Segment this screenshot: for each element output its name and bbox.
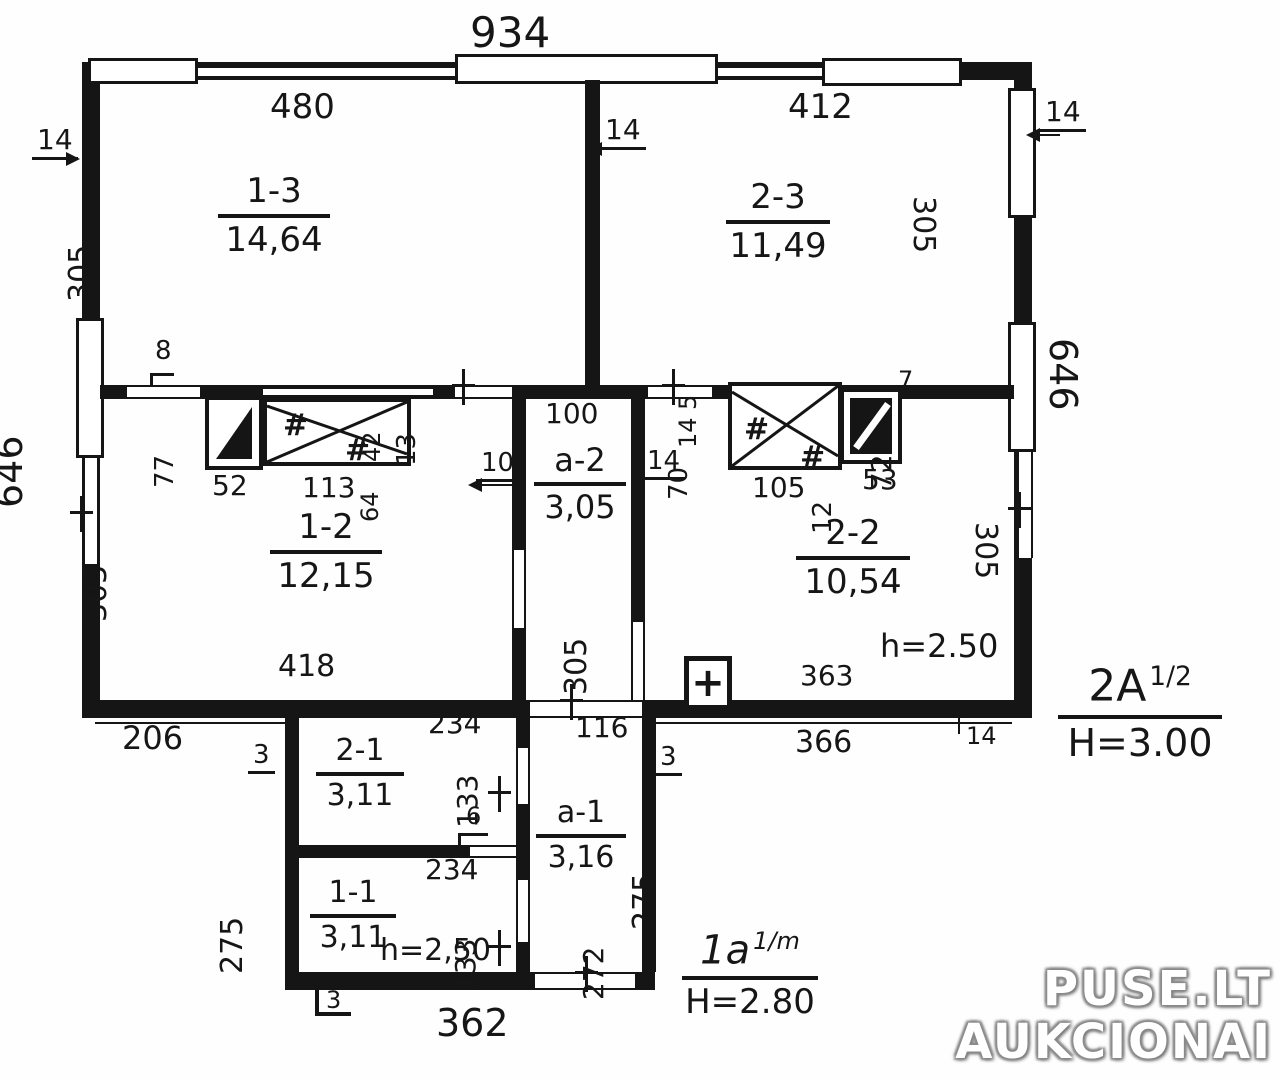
stove-icon <box>840 388 902 464</box>
room-label-2-3: 2-3 11,49 <box>726 178 830 266</box>
floor-plan: # # # # + 1-3 14,64 <box>0 0 1280 1080</box>
arrow-line <box>1038 134 1060 136</box>
dim-77: 77 <box>152 455 178 488</box>
dim-363: 363 <box>800 662 853 690</box>
dim-366: 366 <box>795 728 852 758</box>
dim-272: 272 <box>580 947 608 1000</box>
ceiling-upper: h=2.50 <box>880 630 998 662</box>
room-label-2-1: 2-1 3,11 <box>316 734 404 813</box>
dim-133-bottom: 133 <box>452 939 480 992</box>
note-code-frac: 1/m <box>753 927 800 955</box>
room-area: 11,49 <box>729 227 826 266</box>
dim-646-right: 646 <box>1044 338 1082 411</box>
room-id: a-1 <box>557 796 605 831</box>
dim-8: 8 <box>155 338 172 364</box>
dim-tick <box>80 496 83 532</box>
door-a2-right <box>631 622 645 700</box>
bracket-6-v <box>458 833 461 845</box>
room-area: 12,15 <box>277 557 374 596</box>
room-id: 2-3 <box>750 178 806 217</box>
dim-12: 12 <box>810 501 836 534</box>
dim-14-seg: 14 <box>676 417 700 448</box>
dim-13: 13 <box>394 433 420 466</box>
dim-52: 52 <box>212 472 248 500</box>
dim-418: 418 <box>278 652 335 682</box>
room-area: 14,64 <box>225 221 322 260</box>
arrow-line <box>958 716 960 734</box>
stove-fill <box>216 407 252 459</box>
building-type-note: 2A1/2 H=3.00 <box>1058 662 1222 765</box>
fraction-bar <box>270 550 382 554</box>
note-code-frac: 1/2 <box>1149 661 1191 692</box>
dim-206: 206 <box>122 722 183 754</box>
dim-72: 72 <box>868 454 896 490</box>
window-top-1 <box>88 58 198 84</box>
dim-14-bottom: 14 <box>966 724 997 748</box>
dim-top-overall: 934 <box>470 12 550 54</box>
dim-305-top-left: 305 <box>66 245 96 302</box>
dim-234-mid: 234 <box>425 856 478 884</box>
hash-mark: # <box>800 440 825 475</box>
room-id: 1-3 <box>246 172 302 211</box>
dim-tick <box>462 369 465 405</box>
bracket-8-h <box>150 373 174 376</box>
heater-icon: + <box>684 656 732 710</box>
dim-305-top-right: 305 <box>908 196 938 253</box>
room-id: 1-1 <box>329 876 378 911</box>
dim-105: 105 <box>752 474 805 502</box>
dim-3-right: 3 <box>655 744 682 776</box>
door-midwall-left <box>127 385 200 399</box>
dim-116: 116 <box>575 714 628 742</box>
door-a1-21 <box>516 748 530 804</box>
dim-275-left: 275 <box>218 917 248 974</box>
window-right-1 <box>1008 88 1036 218</box>
dim-14-mid: 14 <box>600 116 646 150</box>
stove-fill <box>844 392 898 460</box>
dim-tick <box>498 930 501 966</box>
fraction-bar <box>218 214 330 218</box>
dim-14-right: 14 <box>1040 98 1086 132</box>
fraction-bar <box>796 556 910 560</box>
watermark-line2: AUKCIONAI <box>955 1016 1272 1070</box>
hash-mark: # <box>744 412 769 447</box>
dim-70: 70 <box>666 467 692 500</box>
niche-left <box>263 387 433 397</box>
dim-14-left: 14 <box>32 126 78 160</box>
window-strip-top-right <box>718 66 822 78</box>
dim-305-bottom-left: 305 <box>82 565 112 622</box>
note-code-text: 1a <box>700 927 750 973</box>
dim-480: 480 <box>270 90 335 124</box>
window-top-2 <box>822 58 962 86</box>
dim-tick <box>498 776 501 812</box>
dim-64: 64 <box>358 491 382 522</box>
dim-305-bottom-right: 305 <box>970 522 1000 579</box>
fraction-bar <box>682 976 818 980</box>
note-code-text: 2A <box>1088 661 1146 712</box>
bracket-8-v <box>150 373 153 386</box>
dim-133-top: 133 <box>454 775 482 828</box>
arrow-line <box>480 484 514 486</box>
room-id: 1-2 <box>298 508 354 547</box>
fraction-bar <box>534 482 626 486</box>
window-strip-top-left <box>198 66 455 78</box>
room-area: 3,05 <box>544 489 615 526</box>
dim-10: 10 <box>476 450 519 482</box>
watermark: PUSE.LT AUKCIONAI <box>955 963 1272 1071</box>
niche-right-line <box>900 391 1010 393</box>
fraction-bar <box>1058 715 1222 719</box>
fraction-bar <box>536 834 626 838</box>
note-height: H=2.80 <box>685 984 815 1021</box>
dim-3-left: 3 <box>248 742 275 774</box>
bracket-6-h <box>458 833 488 836</box>
note-code: 2A1/2 <box>1088 662 1192 711</box>
room-id: 2-1 <box>336 734 385 769</box>
fraction-bar <box>310 914 396 918</box>
dim-100: 100 <box>545 400 598 428</box>
note-height: H=3.00 <box>1067 723 1212 765</box>
dim-412: 412 <box>788 90 853 124</box>
room-area: 3,11 <box>320 921 387 956</box>
dim-7: 7 <box>898 368 913 392</box>
door-a1-11 <box>516 880 530 942</box>
watermark-line1: PUSE.LT <box>955 963 1272 1017</box>
wall-a1-right <box>642 700 656 972</box>
room-label-a-2: a-2 3,05 <box>534 442 626 526</box>
dim-646-left: 646 <box>0 435 28 508</box>
dim-234-top: 234 <box>428 710 481 738</box>
dim-305-a2: 305 <box>562 638 592 695</box>
dim-275-right: 275 <box>630 873 660 930</box>
room-area: 3,11 <box>327 779 394 814</box>
fraction-bar <box>316 772 404 776</box>
dim-362: 362 <box>436 1004 509 1042</box>
annex-type-note: 1a1/m H=2.80 <box>682 928 818 1022</box>
door-a2-left <box>512 550 526 628</box>
room-area: 10,54 <box>804 563 901 602</box>
hash-mark: # <box>283 408 308 443</box>
dim-tick <box>1018 492 1021 528</box>
room-id: a-2 <box>554 442 606 479</box>
dim-42: 42 <box>360 431 384 462</box>
room-label-1-3: 1-3 14,64 <box>218 172 330 260</box>
stove-icon <box>205 396 263 470</box>
room-label-a-1: a-1 3,16 <box>536 796 626 875</box>
fraction-bar <box>726 220 830 224</box>
dim-5: 5 <box>676 395 700 410</box>
note-code: 1a1/m <box>700 928 800 972</box>
wall-divider-13-23 <box>585 80 600 395</box>
dim-3-bottom: 3 <box>326 988 341 1012</box>
room-area: 3,16 <box>548 841 615 876</box>
dim-113: 113 <box>302 474 355 502</box>
